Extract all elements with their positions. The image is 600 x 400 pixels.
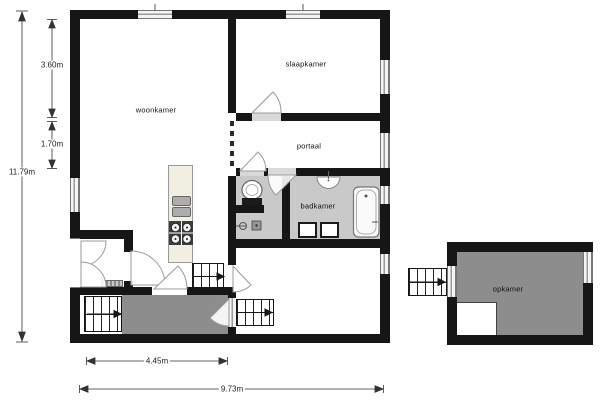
wall-lower-c — [228, 327, 236, 334]
wall-right-e — [380, 274, 390, 343]
livingroom-terrace-door — [154, 266, 187, 289]
kitchen-sink-basin-bottom — [172, 207, 191, 217]
stairs-exterior-left — [84, 296, 122, 332]
dim-label-terrace-width: 4.45m — [144, 357, 170, 366]
opkamer-door-threshold — [447, 266, 457, 297]
window-right-lower — [380, 254, 390, 274]
stairs-lower-room-door — [233, 266, 251, 292]
wall-hall-bath-c — [296, 168, 380, 176]
room-label-slaapkamer: slaapkamer — [286, 60, 327, 69]
wall-lower-a — [228, 248, 236, 265]
wall-wc-sinkroom — [236, 205, 264, 213]
wall-right-c — [380, 168, 390, 186]
entry-doorway — [70, 238, 80, 288]
wall-bottom — [70, 334, 390, 343]
wall-wc-bathroom — [282, 176, 290, 239]
bedroom-door — [252, 92, 281, 113]
wall-bathroom-bottom — [228, 239, 390, 248]
doormat-icon — [101, 280, 123, 287]
terrace-door-threshold — [228, 298, 236, 327]
dim-label-upper-left: 3.60m — [39, 61, 65, 70]
wall-livingroom-south-a — [70, 287, 152, 295]
wall-bedroom-hall-a — [236, 113, 252, 121]
wall-left-a — [70, 10, 80, 178]
stairs-opkamer — [408, 268, 447, 296]
stairs-exterior-right — [236, 299, 274, 326]
stove-icon — [169, 221, 193, 245]
dim-label-total-height: 11.79m — [7, 168, 37, 177]
opkamer-white-nook — [457, 302, 497, 335]
room-label-opkamer: opkamer — [493, 285, 524, 294]
wc-door-threshold — [240, 168, 264, 176]
window-top-right — [286, 10, 320, 19]
room-label-badkamer: badkamer — [301, 202, 336, 211]
stairs-interior — [192, 263, 224, 290]
dim-label-lower-left: 1.70m — [39, 140, 65, 149]
wall-vestibule-top — [80, 230, 133, 239]
wall-livingroom-south-b — [187, 287, 234, 295]
kitchen-sink-basin-top — [172, 196, 191, 206]
wall-bedroom-hall-b — [281, 113, 380, 121]
entry-door-leaf-top — [81, 241, 106, 266]
wall-left-b — [70, 212, 80, 238]
terrace-floor — [122, 295, 228, 334]
open-passage-dashed-wall — [230, 121, 234, 168]
window-right-hall — [380, 133, 390, 168]
window-right-bedroom — [380, 60, 390, 94]
bathroom-cabinet-right — [320, 222, 339, 238]
window-top-left — [138, 10, 172, 19]
wall-top — [70, 10, 390, 19]
bedroom-door-threshold — [252, 113, 281, 121]
vestibule-livingroom-door — [131, 251, 165, 285]
bathroom-cabinet-left — [298, 222, 317, 238]
wall-livingroom-bedroom — [228, 19, 236, 113]
wall-right-a — [380, 10, 390, 60]
dim-label-total-width: 9.73m — [219, 385, 245, 394]
wall-right-b — [380, 94, 390, 133]
wall-livingroom-wc — [228, 176, 236, 248]
opkamer-window — [583, 252, 593, 283]
room-label-portaal: portaal — [297, 142, 321, 151]
window-left — [70, 178, 80, 212]
floor-plan: woonkamer slaapkamer portaal badkamer op… — [0, 0, 600, 400]
room-label-woonkamer: woonkamer — [136, 106, 177, 115]
window-right-bathroom — [380, 186, 390, 204]
bathroom-door-threshold — [268, 168, 296, 176]
wall-vestibule-right-a — [124, 239, 133, 252]
